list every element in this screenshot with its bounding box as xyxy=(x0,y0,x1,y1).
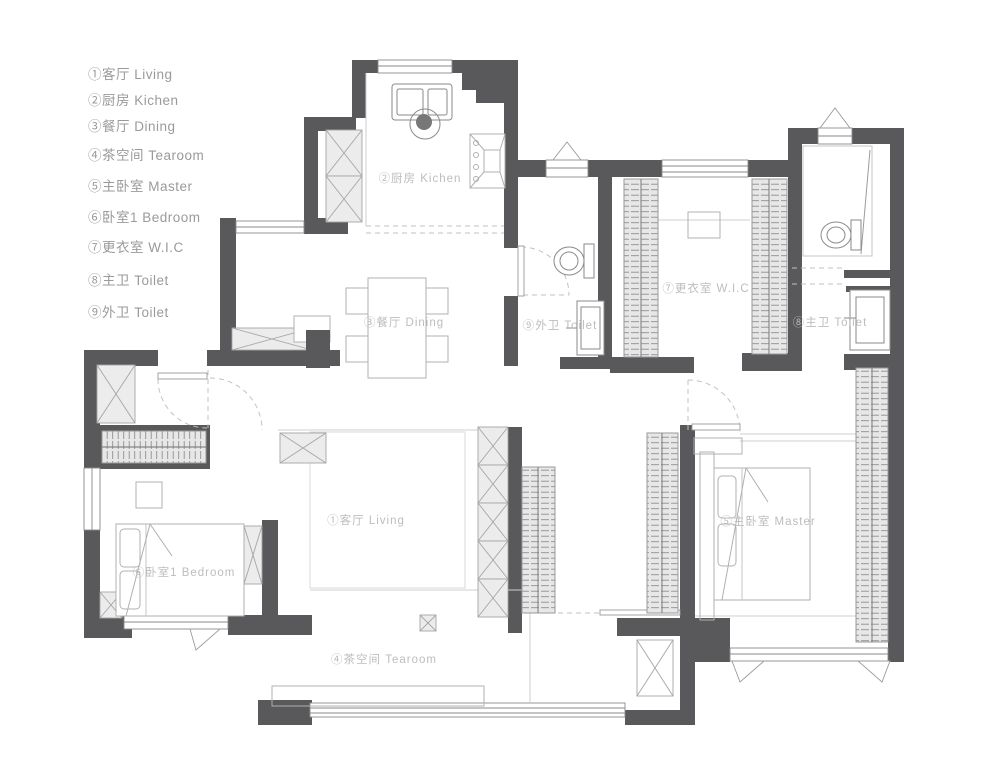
toilet8-wc xyxy=(821,220,861,250)
kitchen-sink xyxy=(392,84,452,139)
wardrobe-master xyxy=(856,368,888,642)
master-headboard xyxy=(700,452,714,620)
wardrobe-wic-left xyxy=(624,179,658,357)
room-label-toilet8: ⑧主卫 Toilet xyxy=(793,316,868,329)
room-label-kitchen: ②厨房 Kichen xyxy=(379,172,462,185)
cabinet-tearoom xyxy=(420,615,436,631)
room-label-toilet9: ⑨外卫 Toilet xyxy=(523,319,598,332)
door-arc-hall xyxy=(210,378,262,430)
cabinet-hall xyxy=(280,433,326,463)
window-tearoom-bottom xyxy=(310,703,625,717)
floor-plan-drawing: ②厨房 Kichen ③餐厅 Dining ⑨外卫 Toilet ⑦更衣室 W.… xyxy=(0,0,1000,784)
cabinet-column-1 xyxy=(478,427,508,465)
floor-plan-page: ①客厅 Living ②厨房 Kichen ③餐厅 Dining ④茶空间 Te… xyxy=(0,0,1000,784)
cabinet-kitchen-1 xyxy=(326,130,362,176)
door-arc-bedroom1 xyxy=(158,379,207,428)
cabinet-column-3 xyxy=(478,503,508,541)
wardrobe-bedroom1 xyxy=(102,431,206,463)
wardrobe-closet-right xyxy=(647,433,678,613)
wic-desk xyxy=(688,212,720,238)
wardrobe-wic-right xyxy=(752,179,787,354)
master-bed xyxy=(714,468,810,600)
wardrobe-closet-left xyxy=(522,467,555,613)
cabinet-column-2 xyxy=(478,465,508,503)
window-dining-left xyxy=(236,221,304,233)
cabinet-kitchen-2 xyxy=(326,176,362,222)
window-bedroom1-bottom xyxy=(124,615,228,650)
window-kitchen-top xyxy=(378,60,452,73)
window-wic-top xyxy=(662,160,748,177)
cabinet-bed1-foot xyxy=(244,526,262,584)
balcony-partition xyxy=(637,640,673,696)
room-label-dining: ③餐厅 Dining xyxy=(364,315,444,329)
window-bedroom1-left xyxy=(84,468,100,530)
room-label-wic: ⑦更衣室 W.I.C xyxy=(662,281,749,295)
room-label-living: ①客厅 Living xyxy=(327,513,405,527)
cabinet-bedroom1-top xyxy=(97,365,135,423)
window-toilet8-top xyxy=(818,108,852,144)
kitchen-stove xyxy=(470,134,505,188)
cabinet-column-5 xyxy=(478,579,508,617)
toilet9-wc xyxy=(554,244,594,278)
window-hall-top xyxy=(546,142,588,177)
cabinet-column-4 xyxy=(478,541,508,579)
bedroom1-desk xyxy=(136,482,162,508)
room-label-bedroom1: ⑥卧室1 Bedroom xyxy=(133,565,236,579)
room-label-master: ⑤主卧室 Master xyxy=(720,514,815,528)
room-label-tearoom: ④茶空间 Tearoom xyxy=(331,652,437,666)
window-master-bottom xyxy=(730,648,890,682)
